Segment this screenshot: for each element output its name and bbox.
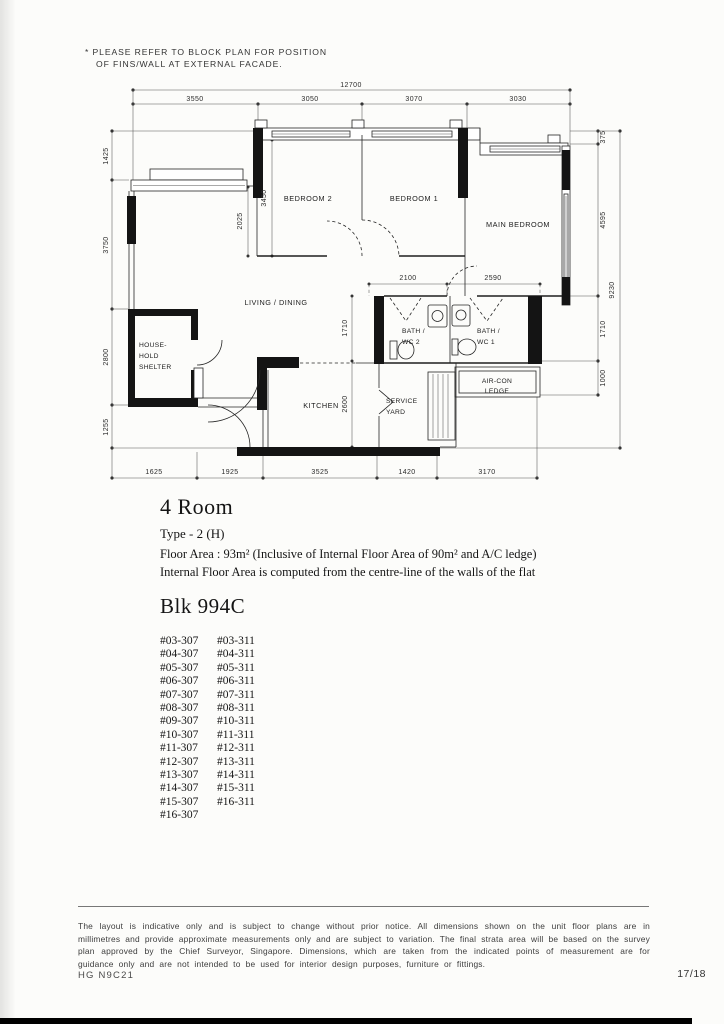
dim-bottom-4: 1420 <box>398 469 415 476</box>
room-label-bath2-1: BATH / <box>402 328 425 335</box>
unit-row: #06-307#06-311 <box>160 675 277 688</box>
unit-number: #12-311 <box>217 742 277 755</box>
dim-top-4: 3030 <box>509 96 526 103</box>
bath1-basin <box>452 305 470 326</box>
room-label-kitchen: KITCHEN <box>303 401 339 410</box>
room-label-bath2-2: WC 2 <box>402 339 420 346</box>
unit-number: #10-311 <box>217 715 277 728</box>
unit-row: #09-307#10-311 <box>160 715 277 728</box>
room-label-household-2: HOLD <box>139 353 159 360</box>
dim-left-3: 2800 <box>103 348 110 365</box>
unit-number: #08-311 <box>217 702 277 715</box>
room-label-aircon-2: LEDGE <box>485 388 509 395</box>
unit-number: #08-307 <box>160 702 217 715</box>
unit-row: #15-307#16-311 <box>160 796 277 809</box>
room-label-bath1-1: BATH / <box>477 328 500 335</box>
unit-number: #04-307 <box>160 648 217 661</box>
dim-left-1: 1425 <box>103 147 110 164</box>
room-label-aircon-1: AIR-CON <box>482 378 512 385</box>
disclaimer-text: The layout is indicative only and is sub… <box>78 920 650 970</box>
internal-area-note: Internal Floor Area is computed from the… <box>160 565 537 580</box>
room-label-living-dining: LIVING / DINING <box>244 298 307 307</box>
floor-area-line: Floor Area : 93m² (Inclusive of Internal… <box>160 547 537 562</box>
unit-number: #04-311 <box>217 648 277 661</box>
unit-row: #11-307#12-311 <box>160 742 277 755</box>
dim-left-4: 1255 <box>103 418 110 435</box>
room-label-service-2: YARD <box>386 409 405 416</box>
unit-number: #13-311 <box>217 756 277 769</box>
room-label-service-1: SERVICE <box>386 398 418 405</box>
dim-bath2-width: 2100 <box>399 275 416 282</box>
unit-number: #06-307 <box>160 675 217 688</box>
unit-row: #13-307#14-311 <box>160 769 277 782</box>
room-label-bath1-2: WC 1 <box>477 339 495 346</box>
divider-line <box>78 906 649 907</box>
dim-hall-depth: 1710 <box>342 319 349 336</box>
unit-row: #16-307 <box>160 809 277 822</box>
dim-bath1-width: 2590 <box>484 275 501 282</box>
dim-right-1: 375 <box>600 131 607 144</box>
bedroom2-door-arc <box>327 221 362 256</box>
dim-bottom-3: 3525 <box>311 469 328 476</box>
unit-number: #10-307 <box>160 729 217 742</box>
room-label-main-bedroom: MAIN BEDROOM <box>486 220 550 229</box>
bath2-basin <box>428 305 447 327</box>
room-label-household-3: SHELTER <box>139 364 171 371</box>
unit-row: #10-307#11-311 <box>160 729 277 742</box>
floor-plan-page: * PLEASE REFER TO BLOCK PLAN FOR POSITIO… <box>0 0 724 1024</box>
unit-number: #05-311 <box>217 662 277 675</box>
main-bedroom-door-arc <box>447 266 477 296</box>
floor-plan-drawing: 12700 3550 3050 3070 3030 1425 3750 2800… <box>0 0 724 500</box>
unit-number: #05-307 <box>160 662 217 675</box>
dim-bottom-1: 1625 <box>145 469 162 476</box>
dim-right-2: 4595 <box>600 211 607 228</box>
dim-bottom-5: 3170 <box>478 469 495 476</box>
dim-bedroom2-lower: 2025 <box>237 212 244 229</box>
unit-number: #15-307 <box>160 796 217 809</box>
dim-top-1: 3550 <box>186 96 203 103</box>
unit-row: #05-307#05-311 <box>160 662 277 675</box>
unit-row: #04-307#04-311 <box>160 648 277 661</box>
room-label-bedroom2: BEDROOM 2 <box>284 194 332 203</box>
entry-door-leaf <box>194 368 203 398</box>
bath2-door-swing <box>390 298 421 321</box>
scan-edge-bar <box>0 1018 692 1024</box>
room-label-bedroom1: BEDROOM 1 <box>390 194 438 203</box>
unit-row: #14-307#15-311 <box>160 782 277 795</box>
dimension-labels: 12700 3550 3050 3070 3030 1425 3750 2800… <box>103 82 616 476</box>
block-title: Blk 994C <box>160 594 277 619</box>
block-section: Blk 994C #03-307#03-311 #04-307#04-311 #… <box>160 594 277 823</box>
unit-number: #07-307 <box>160 689 217 702</box>
unit-number: #03-307 <box>160 635 217 648</box>
unit-number: #06-311 <box>217 675 277 688</box>
bath1-door-swing <box>470 298 503 321</box>
dim-right-4: 1000 <box>600 369 607 386</box>
room-label-household-1: HOUSE- <box>139 342 167 349</box>
unit-list: #03-307#03-311 #04-307#04-311 #05-307#05… <box>160 635 277 823</box>
dim-top-2: 3050 <box>301 96 318 103</box>
page-number: 17/18 <box>677 968 706 980</box>
dim-bottom-2: 1925 <box>221 469 238 476</box>
dim-top-total: 12700 <box>340 82 361 89</box>
flat-type-variant: Type - 2 (H) <box>160 526 537 542</box>
unit-number: #14-307 <box>160 782 217 795</box>
unit-number: #16-311 <box>217 796 277 809</box>
dim-bedroom2-height: 3450 <box>261 189 268 206</box>
unit-number: #15-311 <box>217 782 277 795</box>
bath1-toilet <box>452 339 458 355</box>
flat-type-title: 4 Room <box>160 494 537 520</box>
unit-number: #16-307 <box>160 809 217 822</box>
bedroom1-door-arc <box>362 220 399 257</box>
bath2-toilet <box>390 341 397 359</box>
dim-left-2: 3750 <box>103 236 110 253</box>
unit-number: #09-307 <box>160 715 217 728</box>
dim-right-total: 9230 <box>609 281 616 298</box>
shelter-door-arc <box>197 340 222 365</box>
unit-number: #12-307 <box>160 756 217 769</box>
unit-number: #03-311 <box>217 635 277 648</box>
unit-number: #14-311 <box>217 769 277 782</box>
dim-kitchen-depth: 2600 <box>342 395 349 412</box>
unit-row: #08-307#08-311 <box>160 702 277 715</box>
unit-row: #12-307#13-311 <box>160 756 277 769</box>
drawing-reference: HG N9C21 <box>78 970 134 981</box>
unit-info: 4 Room Type - 2 (H) Floor Area : 93m² (I… <box>160 494 537 580</box>
entry-door-arc-2 <box>208 405 250 447</box>
unit-number <box>217 809 277 822</box>
unit-row: #03-307#03-311 <box>160 635 277 648</box>
unit-number: #07-311 <box>217 689 277 702</box>
unit-row: #07-307#07-311 <box>160 689 277 702</box>
dim-right-3: 1710 <box>600 320 607 337</box>
unit-number: #11-311 <box>217 729 277 742</box>
dim-top-3: 3070 <box>405 96 422 103</box>
unit-number: #13-307 <box>160 769 217 782</box>
unit-number: #11-307 <box>160 742 217 755</box>
